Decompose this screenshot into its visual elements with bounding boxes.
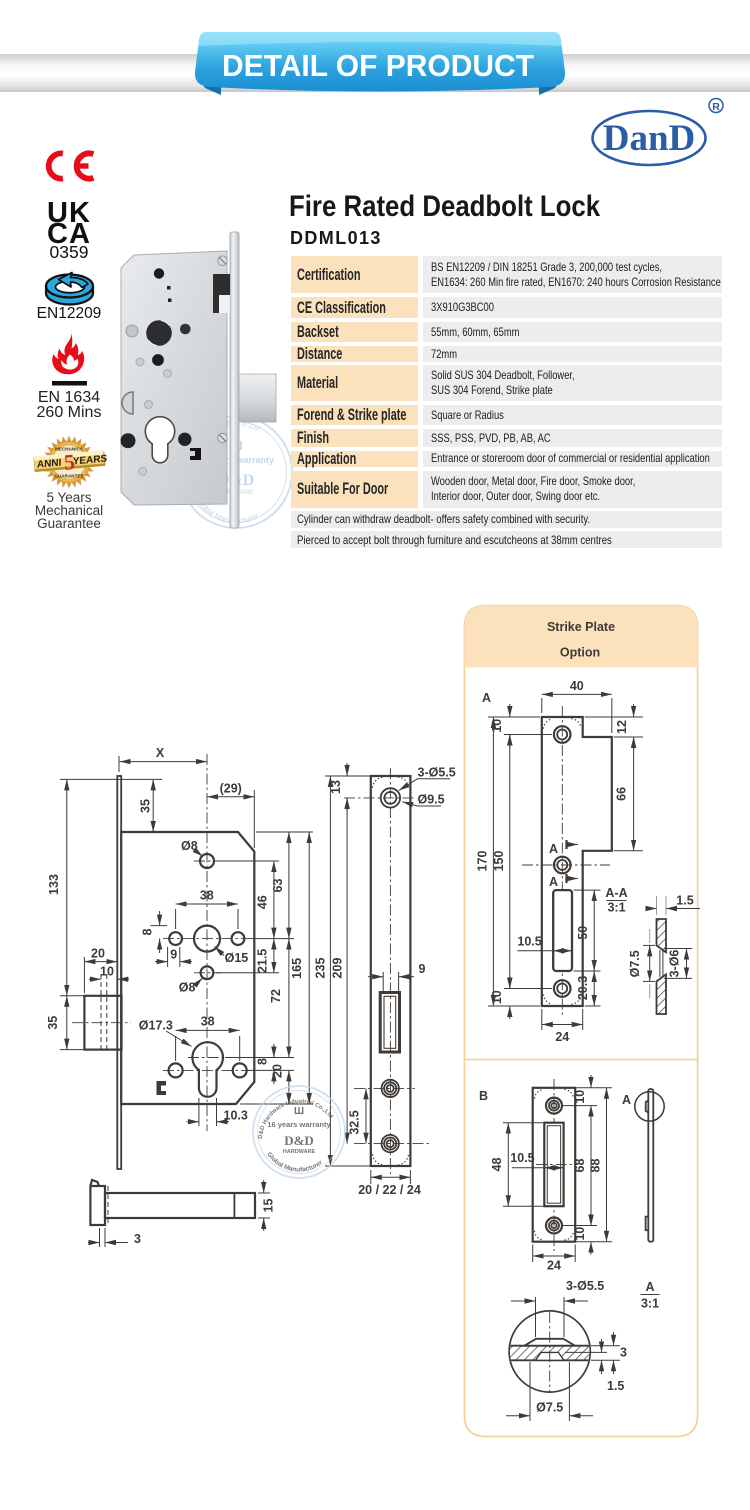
- svg-text:24: 24: [547, 1259, 561, 1273]
- svg-text:133: 133: [47, 874, 61, 895]
- svg-text:50: 50: [576, 926, 590, 940]
- svg-text:D&D: D&D: [284, 1133, 314, 1148]
- svg-text:10: 10: [100, 965, 114, 979]
- svg-text:165: 165: [290, 958, 304, 979]
- svg-text:170: 170: [476, 851, 490, 872]
- svg-text:10.5: 10.5: [510, 1151, 534, 1165]
- svg-text:20 / 22 / 24: 20 / 22 / 24: [358, 1183, 421, 1197]
- svg-text:63: 63: [271, 879, 285, 893]
- svg-text:10: 10: [490, 990, 504, 1004]
- svg-text:Ø9.5: Ø9.5: [418, 793, 445, 807]
- svg-text:10.3: 10.3: [224, 1109, 248, 1123]
- svg-text:72: 72: [269, 989, 283, 1003]
- svg-text:66: 66: [615, 787, 629, 801]
- svg-text:DanD: DanD: [603, 118, 696, 159]
- svg-text:35: 35: [46, 1016, 60, 1030]
- svg-text:3:1: 3:1: [641, 1297, 659, 1311]
- svg-text:13: 13: [329, 780, 343, 794]
- svg-text:Ø15: Ø15: [225, 951, 249, 965]
- svg-text:3:1: 3:1: [607, 901, 625, 915]
- svg-text:Option: Option: [560, 646, 600, 660]
- svg-text:10: 10: [573, 1227, 587, 1241]
- svg-text:88: 88: [588, 1159, 602, 1173]
- svg-text:10: 10: [490, 719, 504, 733]
- svg-text:A: A: [482, 691, 491, 705]
- svg-text:B: B: [479, 1089, 488, 1103]
- svg-text:R: R: [712, 101, 720, 113]
- svg-text:A: A: [622, 1093, 631, 1107]
- svg-text:Ø7.5: Ø7.5: [536, 1401, 563, 1415]
- svg-text:38: 38: [201, 1015, 215, 1029]
- svg-text:1.5: 1.5: [676, 894, 693, 908]
- svg-text:3-Ø5.5: 3-Ø5.5: [566, 1279, 604, 1293]
- svg-text:40: 40: [570, 679, 584, 693]
- svg-text:(29): (29): [220, 782, 242, 796]
- svg-text:235: 235: [314, 958, 328, 979]
- svg-text:Ø7.5: Ø7.5: [628, 950, 642, 977]
- svg-text:20: 20: [271, 1064, 285, 1078]
- svg-text:35: 35: [139, 799, 153, 813]
- svg-text:Ш: Ш: [294, 1106, 304, 1117]
- svg-text:HARDWARE: HARDWARE: [283, 1149, 316, 1155]
- svg-text:Ø8: Ø8: [179, 981, 196, 995]
- svg-text:1.5: 1.5: [607, 1379, 624, 1393]
- svg-text:8: 8: [255, 1058, 269, 1065]
- svg-text:ANNI: ANNI: [37, 457, 62, 470]
- svg-text:15: 15: [262, 1199, 276, 1213]
- svg-text:3: 3: [134, 1232, 141, 1246]
- svg-text:X: X: [156, 746, 165, 760]
- svg-text:46: 46: [255, 895, 269, 909]
- svg-text:10.5: 10.5: [517, 935, 541, 949]
- svg-text:21.5: 21.5: [255, 949, 269, 973]
- svg-text:150: 150: [492, 851, 506, 872]
- svg-text:24: 24: [555, 1030, 569, 1044]
- svg-text:9: 9: [170, 948, 177, 962]
- svg-text:12: 12: [615, 720, 629, 734]
- svg-text:A: A: [549, 875, 558, 889]
- svg-text:Ø17.3: Ø17.3: [139, 1019, 173, 1033]
- svg-text:A-A: A-A: [605, 886, 627, 900]
- svg-text:68: 68: [573, 1159, 587, 1173]
- svg-text:38: 38: [200, 889, 214, 903]
- svg-text:DETAIL OF PRODUCT: DETAIL OF PRODUCT: [222, 48, 534, 83]
- svg-text:Strike Plate: Strike Plate: [547, 620, 615, 634]
- svg-text:20: 20: [91, 947, 105, 961]
- svg-text:8: 8: [141, 928, 155, 935]
- svg-text:20.3: 20.3: [576, 976, 590, 1000]
- svg-text:3-Ø6: 3-Ø6: [668, 950, 682, 978]
- svg-text:A: A: [549, 842, 558, 856]
- svg-text:Ø8: Ø8: [181, 839, 198, 853]
- svg-text:209: 209: [331, 958, 345, 979]
- svg-text:9: 9: [419, 962, 426, 976]
- svg-text:10: 10: [573, 1090, 587, 1104]
- svg-text:48: 48: [490, 1158, 504, 1172]
- svg-text:A: A: [645, 1280, 654, 1294]
- svg-text:3-Ø5.5: 3-Ø5.5: [418, 765, 456, 779]
- svg-text:3: 3: [620, 1346, 627, 1360]
- svg-text:16 years warranty: 16 years warranty: [267, 1120, 331, 1129]
- svg-text:32.5: 32.5: [348, 1110, 362, 1134]
